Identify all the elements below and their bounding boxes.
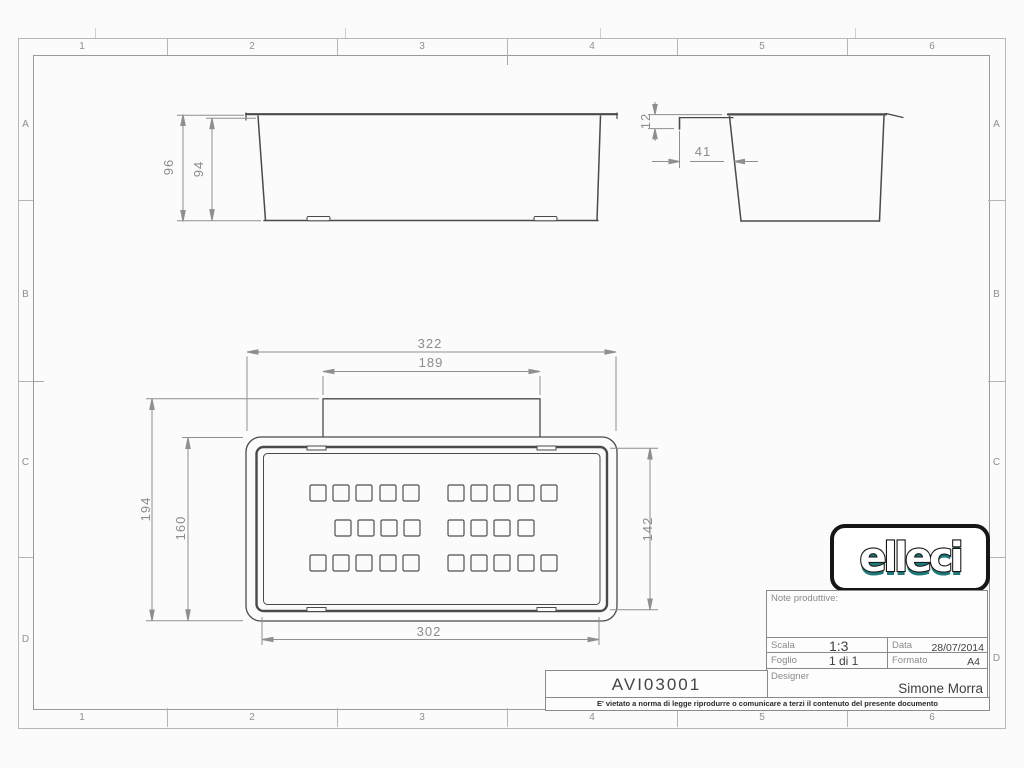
data-label: Data	[892, 640, 912, 651]
dim-label-12: 12	[638, 99, 654, 143]
elleci-logo-text: elleci elleci	[840, 532, 980, 584]
part-number-box: AVI03001	[545, 670, 768, 700]
scala-label: Scala	[771, 640, 795, 651]
dim-label-96: 96	[161, 145, 177, 189]
designer-label: Designer	[771, 671, 809, 682]
top-view	[246, 399, 617, 621]
foglio-value: 1 di 1	[829, 654, 858, 668]
dim-label-142: 142	[640, 507, 656, 551]
formato-label: Formato	[892, 655, 927, 666]
disclaimer-text: E' vietato a norma di legge riprodurre o…	[546, 698, 989, 710]
elleci-logo: elleci elleci	[830, 524, 990, 592]
designer-value: Simone Morra	[898, 681, 983, 696]
note-label: Note produttive:	[771, 593, 838, 604]
designer-cell: Designer Simone Morra	[766, 668, 988, 699]
dim-label-41: 41	[681, 144, 725, 160]
dim-label-302: 302	[407, 624, 451, 640]
disclaimer-box: E' vietato a norma di legge riprodurre o…	[545, 697, 990, 711]
foglio-label: Foglio	[771, 655, 797, 666]
front-view	[246, 113, 617, 221]
dim-label-194: 194	[138, 487, 154, 531]
drain-holes	[310, 485, 557, 571]
formato-value: A4	[967, 656, 980, 668]
dim-label-189: 189	[409, 355, 453, 371]
note-box: Note produttive:	[766, 590, 988, 639]
dim-label-94: 94	[191, 147, 207, 191]
dim-label-322: 322	[408, 336, 452, 352]
side-view	[680, 114, 904, 222]
dim-label-160: 160	[173, 506, 189, 550]
drawing-sheet: 1 2 3 4 5 6 1 2 3 4 5 6 A B C D A B C D	[0, 0, 1024, 768]
part-number: AVI03001	[546, 671, 767, 699]
svg-text:elleci: elleci	[859, 535, 960, 581]
